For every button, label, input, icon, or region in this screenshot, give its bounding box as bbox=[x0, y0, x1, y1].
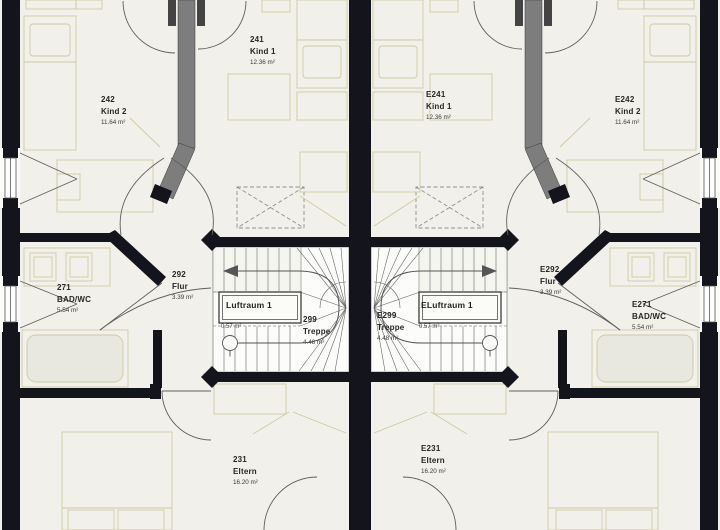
void-label-luftraum-left: Luftraum 1 bbox=[226, 300, 272, 310]
room-label-271: 271 BAD/WC 5.54 m² bbox=[57, 281, 91, 316]
room-label-299: 299 Treppe 4.48 m² bbox=[303, 313, 330, 348]
void-area-luftraum-left: 0.57 m² bbox=[221, 324, 241, 330]
room-label-E241: E241 Kind 1 12.36 m² bbox=[426, 88, 452, 123]
void-area-luftraum-right: 0.57 m² bbox=[419, 324, 439, 330]
floor-plan: 241 Kind 1 12.36 m² 242 Kind 2 11.64 m² … bbox=[0, 0, 720, 530]
room-label-E292: E292 Flur 3.39 m² bbox=[540, 263, 561, 298]
room-label-231: 231 Eltern 16.20 m² bbox=[233, 453, 258, 488]
room-label-E231: E231 Eltern 16.20 m² bbox=[421, 442, 446, 477]
room-label-241: 241 Kind 1 12.36 m² bbox=[250, 33, 276, 68]
room-label-292: 292 Flur 3.39 m² bbox=[172, 268, 193, 303]
void-label-luftraum-right: ELuftraum 1 bbox=[421, 300, 473, 310]
room-label-E299: E299 Treppe 4.48 m² bbox=[377, 309, 404, 344]
room-label-242: 242 Kind 2 11.64 m² bbox=[101, 93, 127, 128]
room-label-E271: E271 BAD/WC 5.54 m² bbox=[632, 298, 666, 333]
floor-plan-drawing bbox=[0, 0, 720, 530]
room-label-E242: E242 Kind 2 11.64 m² bbox=[615, 93, 641, 128]
